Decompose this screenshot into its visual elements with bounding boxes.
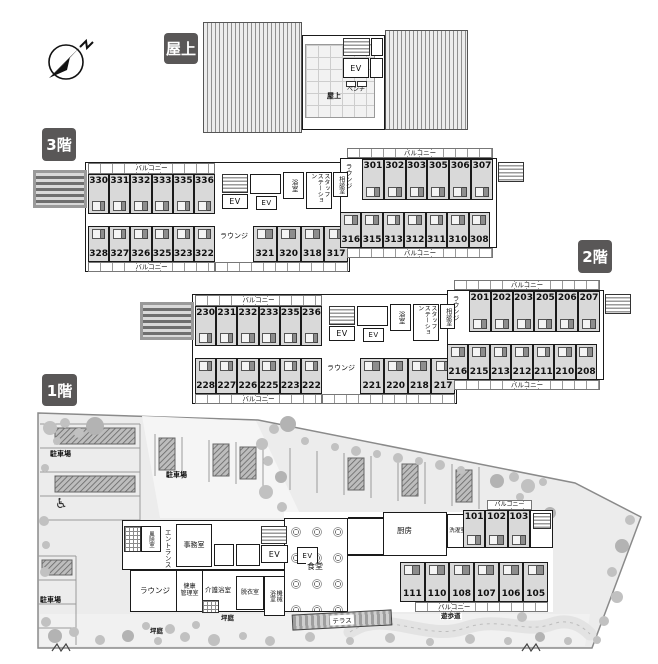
f3-staff-station: スタッフ ステーション [306,172,332,209]
f2-balcony-top-right: バルコニー [454,280,600,290]
room-cell: 235 [280,306,301,346]
room-cell: 310 [447,212,468,248]
room-cell: 210 [554,344,575,380]
room-cell: 201 [469,291,491,332]
room-cell: 308 [469,212,490,248]
room-cell: 223 [280,358,301,394]
f3-lounge-label: ラウンジ [220,233,248,241]
room-cell: 106 [499,562,524,602]
f1-ev1-room: EV [261,545,288,563]
room-cell: 207 [578,291,600,332]
room-cell: 103 [508,510,530,548]
room-cell: 316 [340,212,361,248]
f1-entrance-mat [124,526,141,552]
f1-balcony-top-right: バルコニー [487,500,532,510]
f2-bath-room: 浴室 [390,304,411,331]
room-cell: 323 [173,226,194,262]
room-cell: 336 [194,174,215,214]
f1-machine-bath-room: 機械 浴室 [264,576,285,616]
f1-right-bottom-rooms: 111110108107106105 [400,562,548,602]
f3-mid-bottom-rooms: 321320318317 [253,226,348,262]
room-cell: 211 [533,344,554,380]
bath-label: 浴室 [290,179,297,192]
balcony-label: バルコニー [133,264,169,271]
f2-left-bottom-rooms: 228227226225223222 [195,358,322,394]
badge-rooftop: 屋上 [164,33,198,64]
staff-station-label: スタッフ ステーション [309,173,329,208]
roof-hatch-left [203,22,302,133]
balcony-label: バルコニー [240,396,276,403]
room-cell: 208 [576,344,597,380]
room-cell: 333 [152,174,173,214]
room-cell: 331 [109,174,130,214]
health-room-label: 健康 管理室 [180,584,198,597]
f1-exterior-stairs-right [533,513,551,529]
room-cell: 327 [109,226,130,262]
f1-parking-label-middle: 駐車場 [166,472,187,480]
windbreak-label: 風除室 [148,531,154,548]
room-cell: 311 [426,212,447,248]
room-cell: 228 [195,358,216,394]
consult-room-label: 相談室 [337,176,344,194]
f2-ev1-room: EV [329,326,355,341]
terrace-label: テラス [330,614,354,625]
room-cell: 328 [88,226,109,262]
room-cell: 322 [194,226,215,262]
f3-right-bottom-rooms: 316315313312311310308 [340,212,490,248]
badge-floor1: 1階 [42,374,77,406]
staff-station-label: スタッフ ステーション [416,305,436,340]
f1-dining-label: 食堂 [306,563,324,572]
f1-care-bath-label: 介護浴室 [205,587,231,594]
f1-kitchen-label: 厨房 [397,527,412,535]
rooftop-deck-label: 屋上 [327,93,341,101]
f1-garden-label-center: 坪庭 [221,615,234,622]
rooftop-ev-room: EV [343,58,369,78]
room-cell: 313 [383,212,404,248]
f2-right-top-rooms: 201202203205206207 [469,291,600,332]
f3-left-top-rooms: 330331332333335336 [88,174,215,214]
room-cell: 205 [534,291,556,332]
f3-ev1-room: EV [222,194,248,209]
f3-exterior-stairs-right [498,162,524,182]
room-cell: 233 [259,306,280,346]
ev-label: EV [261,199,271,207]
dressing-room-label: 脱衣室 [241,590,259,597]
consult-room-label: 相談室 [444,308,451,326]
room-cell: 111 [400,562,425,602]
room-cell: 206 [556,291,578,332]
rooftop-small-room [371,38,383,56]
balcony-label: バルコニー [509,382,545,389]
room-cell: 236 [301,306,322,346]
f3-balcony-top-left: バルコニー [88,163,215,174]
room-cell: 107 [474,562,499,602]
room-cell: 312 [404,212,425,248]
f2-exterior-stairs-left [140,302,194,340]
room-cell: 315 [361,212,382,248]
room-cell: 202 [491,291,513,332]
f2-right-bottom-rooms: 216215213212211210208 [447,344,597,380]
room-cell: 231 [216,306,237,346]
room-cell: 305 [427,159,449,200]
room-cell: 221 [360,358,384,394]
f3-balcony-top-right: バルコニー [347,148,493,158]
north-arrow-icon [40,30,100,92]
room-cell: 213 [490,344,511,380]
f1-wc-room [236,544,260,566]
f3-service-room [250,174,281,194]
room-cell: 330 [88,174,109,214]
f1-stairs-icon [261,526,287,544]
room-cell: 307 [471,159,493,200]
room-cell: 332 [130,174,151,214]
f1-corridor-wall [348,554,384,556]
room-cell: 215 [468,344,489,380]
ev-label: EV [302,552,312,560]
room-cell: 108 [449,562,474,602]
rooftop-stairs-icon [343,38,370,56]
f1-dressing-room: 脱衣室 [236,576,264,610]
ev-label: EV [336,329,348,338]
f2-stairs-icon [329,306,355,325]
balcony-label: バルコニー [402,250,438,257]
room-cell: 227 [216,358,237,394]
room-cell: 218 [408,358,432,394]
room-cell: 226 [237,358,258,394]
office-label: 事務室 [184,542,205,550]
f2-balcony-bottom-mid [322,394,455,404]
room-cell: 105 [523,562,548,602]
f1-parking-label-left: 駐車場 [50,451,71,459]
room-cell: 232 [237,306,258,346]
f3-ev2-room: EV [256,196,277,210]
f1-entrance-label: エントランス [163,529,170,575]
machine-bath-label: 機械 浴室 [268,590,281,602]
room-cell: 220 [384,358,408,394]
ev-label: EV [350,64,362,73]
f3-right-top-rooms: 301302303305306307 [362,159,493,200]
f1-balcony-bottom-right: バルコニー [415,602,548,612]
room-cell: 303 [406,159,428,200]
f1-garden-deck [202,600,219,613]
balcony-label: バルコニー [436,604,472,611]
badge-floor3: 3階 [42,128,76,161]
balcony-label: バルコニー [402,150,438,157]
badge-floor2: 2階 [578,240,612,273]
f1-promenade-label: 遊歩道 [440,613,462,620]
f3-exterior-stairs-left [33,170,87,208]
f3-left-bottom-rooms: 328327326325323322 [88,226,215,262]
room-cell: 302 [384,159,406,200]
balcony-label: バルコニー [509,282,545,289]
f1-wc-room [214,544,234,566]
room-cell: 321 [253,226,277,262]
room-cell: 110 [425,562,450,602]
f3-bath-room: 浴室 [283,172,304,199]
room-cell: 335 [173,174,194,214]
f2-exterior-stairs-right [605,294,631,314]
balcony-label: バルコニー [133,165,169,172]
room-cell: 320 [277,226,301,262]
ev-label: EV [229,197,241,206]
room-cell: 101 [463,510,485,548]
room-cell: 325 [152,226,173,262]
f1-garden-label-left: 坪庭 [150,628,163,635]
balcony-label: バルコニー [240,297,276,304]
f3-balcony-bottom-left: バルコニー [88,262,215,272]
f2-lounge-vertical-label: ラウンジ [451,295,458,329]
room-cell: 216 [447,344,468,380]
wheelchair-icon: ♿ [55,497,68,512]
f1-corridor-wall [348,517,384,519]
f2-service-room [357,306,388,326]
ev-label: EV [368,331,378,339]
f2-lounge-label: ラウンジ [327,365,355,373]
bath-label: 浴室 [397,311,404,324]
room-cell: 225 [259,358,280,394]
room-cell: 318 [301,226,325,262]
ev-label: EV [269,550,281,559]
f3-stairs-icon [222,174,248,193]
f3-balcony-bottom-mid [215,262,348,272]
f3-balcony-bottom-right: バルコニー [347,248,493,258]
f1-kitchen [383,512,447,556]
f2-balcony-bottom-right: バルコニー [454,380,600,390]
f2-left-top-rooms: 230231232233235236 [195,306,322,346]
f2-balcony-bottom-left: バルコニー [195,394,322,404]
f1-windbreak-room: 風除室 [141,526,161,552]
room-cell: 203 [513,291,535,332]
f2-balcony-top-left: バルコニー [195,295,322,306]
rooftop-ev-side-room [370,58,383,78]
f1-right-top-rooms: 101102103 [463,510,530,548]
room-cell: 212 [511,344,532,380]
room-cell: 326 [130,226,151,262]
bench-label: ベンチ [347,87,365,94]
f1-parking-label-bottom: 駐車場 [40,597,61,605]
f2-staff-station: スタッフ ステーション [413,304,439,341]
roof-hatch-right [385,30,468,130]
room-cell: 230 [195,306,216,346]
room-cell: 301 [362,159,384,200]
f3-lounge-vertical-label: ラウンジ [344,163,351,197]
balcony-label: バルコニー [493,502,527,508]
floor-plan-page: 屋上 3階 2階 1階 EV ベンチ 屋上 バルコニー 330331332333… [0,0,658,664]
f2-ev2-room: EV [363,328,384,342]
room-cell: 306 [449,159,471,200]
f1-health-room: 健康 管理室 [176,570,203,612]
f2-mid-bottom-rooms: 221220218217 [360,358,455,394]
f1-lounge-label: ラウンジ [140,587,170,595]
room-cell: 222 [301,358,322,394]
room-cell: 102 [485,510,507,548]
f1-office-room: 事務室 [176,524,212,567]
